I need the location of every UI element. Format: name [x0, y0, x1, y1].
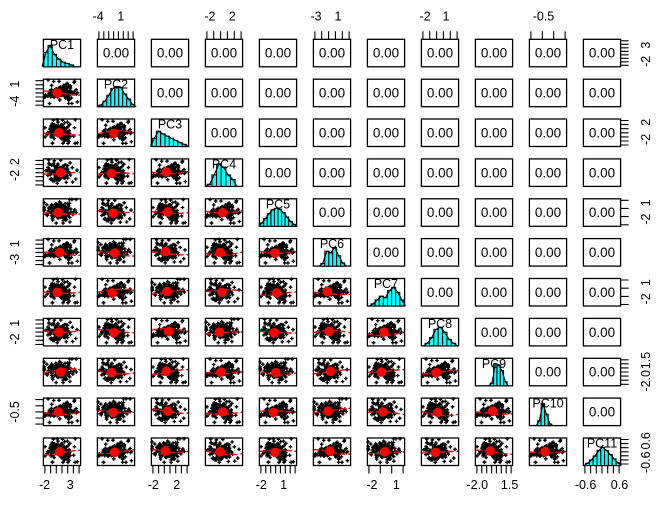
svg-text:-2: -2: [8, 170, 22, 181]
svg-text:0.00: 0.00: [535, 46, 561, 61]
svg-text:1: 1: [8, 320, 22, 327]
svg-text:0.00: 0.00: [589, 365, 615, 380]
svg-text:-2: -2: [639, 213, 653, 224]
svg-text:0.00: 0.00: [427, 245, 453, 260]
svg-text:0.00: 0.00: [265, 46, 291, 61]
svg-text:2: 2: [229, 10, 236, 24]
svg-text:1.5: 1.5: [639, 352, 653, 369]
svg-text:0.00: 0.00: [211, 46, 237, 61]
svg-text:0.00: 0.00: [535, 125, 561, 140]
svg-text:-2.0: -2.0: [639, 370, 653, 392]
svg-text:0.00: 0.00: [481, 86, 507, 101]
svg-text:2: 2: [8, 158, 22, 165]
svg-text:0.00: 0.00: [157, 86, 183, 101]
svg-text:1: 1: [639, 199, 653, 206]
svg-text:-2: -2: [256, 478, 267, 492]
svg-text:0.00: 0.00: [427, 165, 453, 180]
svg-text:0.00: 0.00: [319, 125, 345, 140]
svg-text:0.00: 0.00: [535, 365, 561, 380]
svg-text:2: 2: [639, 119, 653, 126]
svg-text:PC5: PC5: [266, 197, 290, 211]
svg-text:0.00: 0.00: [427, 86, 453, 101]
svg-text:0.00: 0.00: [589, 46, 615, 61]
svg-text:PC3: PC3: [158, 118, 182, 132]
svg-text:0.00: 0.00: [319, 86, 345, 101]
svg-text:0.00: 0.00: [481, 285, 507, 300]
svg-text:-4: -4: [93, 10, 104, 24]
svg-text:0.00: 0.00: [589, 86, 615, 101]
svg-text:-4: -4: [8, 96, 22, 107]
svg-text:0.00: 0.00: [211, 86, 237, 101]
svg-text:0.00: 0.00: [427, 46, 453, 61]
svg-text:1.5: 1.5: [501, 478, 518, 492]
svg-text:2: 2: [173, 478, 180, 492]
svg-text:1: 1: [393, 478, 400, 492]
svg-text:-2: -2: [148, 478, 159, 492]
svg-text:0.00: 0.00: [265, 165, 291, 180]
svg-text:0.00: 0.00: [589, 165, 615, 180]
svg-text:0.00: 0.00: [535, 205, 561, 220]
svg-text:-2: -2: [8, 333, 22, 344]
svg-text:-2: -2: [366, 478, 377, 492]
svg-text:0.00: 0.00: [589, 325, 615, 340]
svg-text:0.00: 0.00: [589, 245, 615, 260]
svg-text:-2.0: -2.0: [467, 478, 489, 492]
svg-text:0.00: 0.00: [319, 165, 345, 180]
svg-text:0.00: 0.00: [373, 245, 399, 260]
svg-text:0.00: 0.00: [481, 325, 507, 340]
svg-text:0.00: 0.00: [373, 165, 399, 180]
svg-text:0.00: 0.00: [319, 205, 345, 220]
svg-text:0.00: 0.00: [535, 325, 561, 340]
svg-text:0.00: 0.00: [211, 125, 237, 140]
svg-text:PC9: PC9: [482, 357, 506, 371]
svg-text:0.00: 0.00: [535, 165, 561, 180]
svg-text:1: 1: [117, 10, 124, 24]
svg-text:0.00: 0.00: [373, 46, 399, 61]
svg-text:0.00: 0.00: [535, 86, 561, 101]
svg-text:0.00: 0.00: [373, 86, 399, 101]
svg-text:-3: -3: [310, 10, 321, 24]
svg-text:0.00: 0.00: [589, 205, 615, 220]
svg-text:0.00: 0.00: [319, 46, 345, 61]
svg-text:0.00: 0.00: [481, 245, 507, 260]
svg-text:0.00: 0.00: [265, 125, 291, 140]
svg-text:-2: -2: [420, 10, 431, 24]
svg-text:0.00: 0.00: [373, 125, 399, 140]
svg-text:PC8: PC8: [428, 317, 452, 331]
svg-text:PC11: PC11: [587, 437, 617, 451]
svg-text:PC4: PC4: [212, 157, 236, 171]
svg-text:3: 3: [639, 42, 653, 49]
svg-text:0.00: 0.00: [427, 125, 453, 140]
svg-text:1: 1: [335, 10, 342, 24]
svg-text:-2: -2: [204, 10, 215, 24]
svg-text:3: 3: [67, 478, 74, 492]
svg-text:0.00: 0.00: [589, 125, 615, 140]
svg-text:0.00: 0.00: [481, 46, 507, 61]
svg-text:0.00: 0.00: [157, 46, 183, 61]
svg-text:1: 1: [8, 240, 22, 247]
svg-text:0.00: 0.00: [535, 245, 561, 260]
svg-text:-2: -2: [639, 134, 653, 145]
svg-text:PC1: PC1: [50, 38, 74, 52]
svg-text:0.00: 0.00: [103, 46, 129, 61]
svg-text:-2: -2: [39, 478, 50, 492]
svg-text:PC6: PC6: [320, 237, 344, 251]
svg-text:-0.5: -0.5: [533, 10, 555, 24]
svg-text:-2: -2: [639, 293, 653, 304]
svg-text:1: 1: [443, 10, 450, 24]
svg-text:PC2: PC2: [104, 78, 128, 92]
svg-text:0.00: 0.00: [481, 125, 507, 140]
svg-text:0.00: 0.00: [427, 285, 453, 300]
svg-text:0.00: 0.00: [481, 205, 507, 220]
svg-text:0.00: 0.00: [589, 285, 615, 300]
svg-text:0.00: 0.00: [589, 405, 615, 420]
svg-text:-0.6: -0.6: [639, 451, 653, 473]
svg-text:-2: -2: [639, 56, 653, 67]
svg-text:1: 1: [8, 81, 22, 88]
svg-text:0.00: 0.00: [481, 165, 507, 180]
svg-text:0.00: 0.00: [535, 285, 561, 300]
svg-text:1: 1: [280, 478, 287, 492]
svg-text:PC7: PC7: [374, 277, 398, 291]
svg-text:-0.5: -0.5: [8, 401, 22, 423]
svg-text:0.6: 0.6: [639, 432, 653, 449]
svg-text:1: 1: [639, 279, 653, 286]
svg-text:-3: -3: [8, 254, 22, 265]
svg-text:0.00: 0.00: [373, 205, 399, 220]
svg-text:0.6: 0.6: [611, 478, 628, 492]
svg-text:0.00: 0.00: [427, 205, 453, 220]
svg-text:0.00: 0.00: [265, 86, 291, 101]
svg-text:-0.6: -0.6: [575, 478, 597, 492]
svg-text:PC10: PC10: [532, 397, 563, 411]
